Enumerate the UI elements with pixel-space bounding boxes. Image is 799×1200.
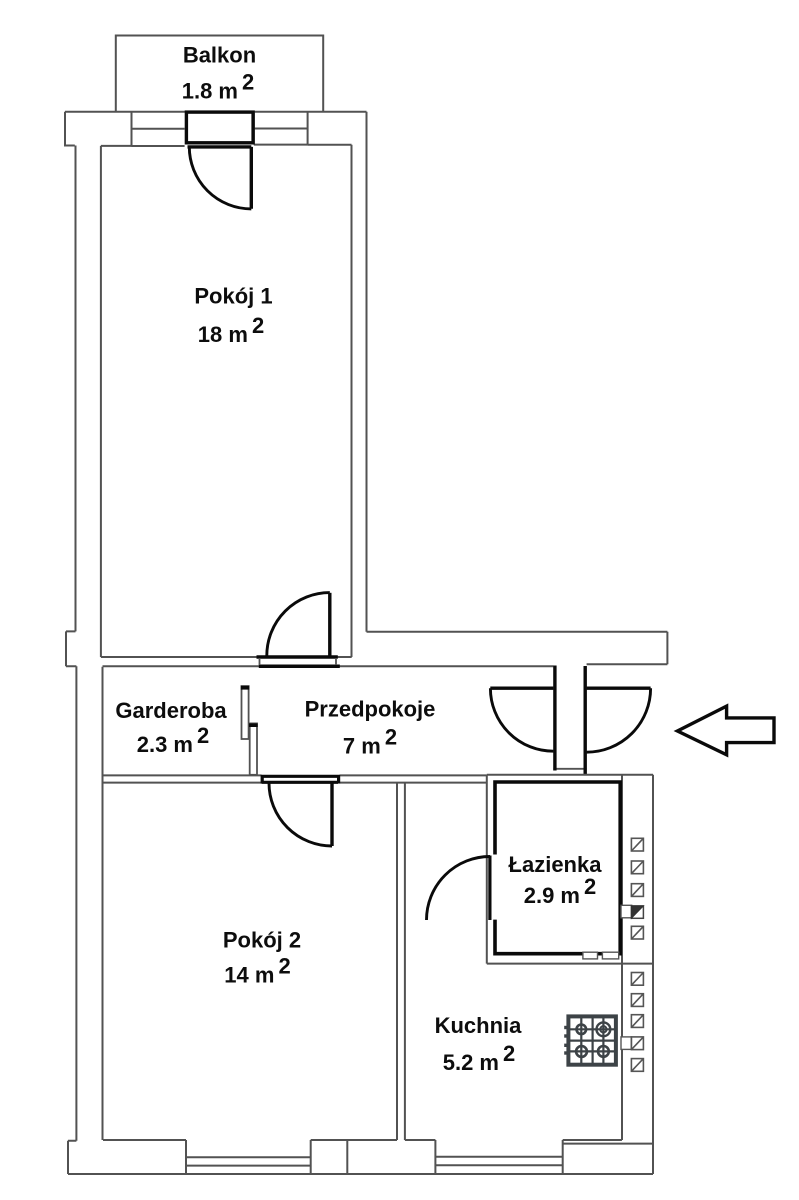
- svg-text:Balkon: Balkon: [183, 43, 256, 68]
- svg-text:Przedpokoje: Przedpokoje: [305, 697, 436, 722]
- svg-text:Garderoba: Garderoba: [115, 698, 227, 723]
- svg-text:Pokój 1: Pokój 1: [194, 284, 272, 309]
- svg-text:Pokój 2: Pokój 2: [223, 928, 301, 953]
- svg-text:Kuchnia: Kuchnia: [435, 1013, 523, 1038]
